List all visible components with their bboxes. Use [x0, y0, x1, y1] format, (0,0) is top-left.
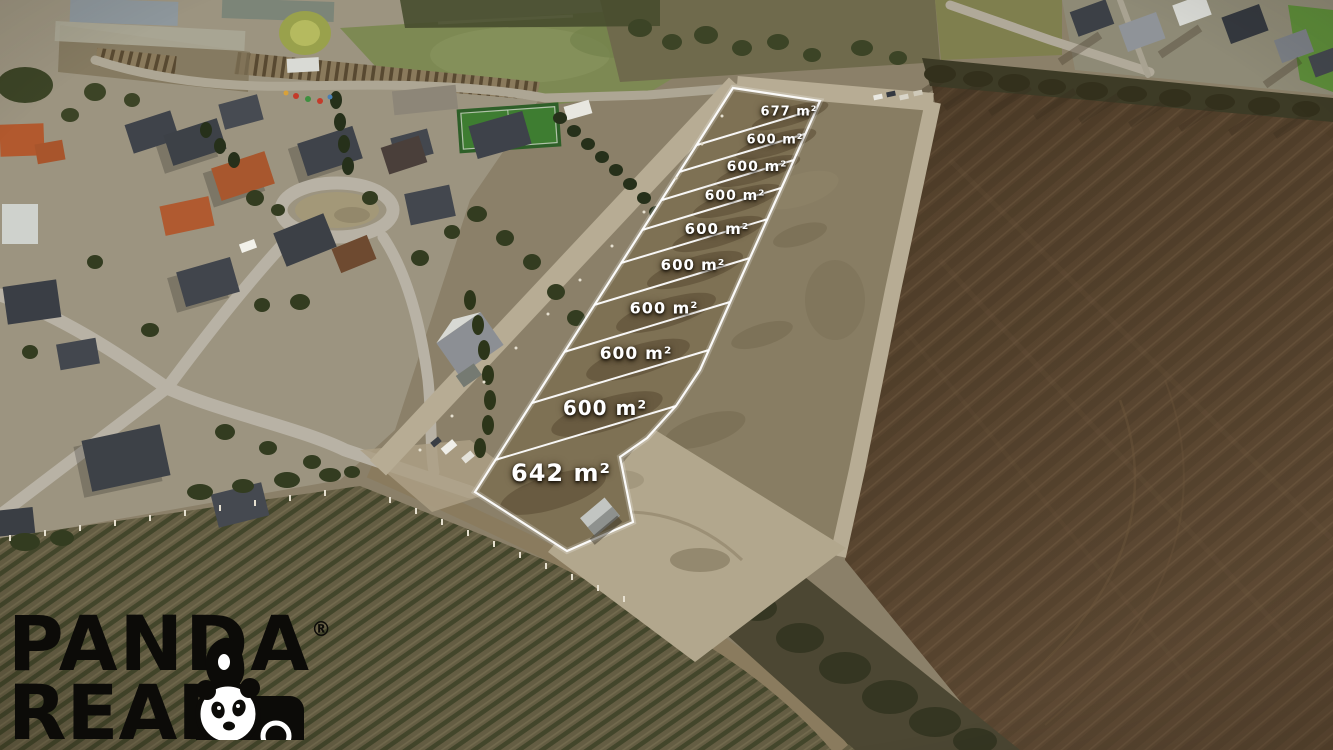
plot-label: 600 m²: [705, 188, 766, 204]
registered-trademark: ®: [311, 617, 331, 641]
plot-label: 600 m²: [600, 344, 673, 364]
panda-real-logo: PANDA® REAL: [8, 596, 331, 749]
plot-label: 600 m²: [747, 133, 804, 148]
plot-label: 677 m²: [761, 105, 818, 120]
panda-face-icon: [194, 610, 308, 740]
plot-label: 600 m²: [661, 256, 726, 274]
plot-label: 600 m²: [727, 159, 788, 175]
plot-label: 600 m²: [630, 299, 699, 318]
plot-label: 600 m²: [685, 220, 750, 238]
aerial-photo: 677 m²600 m²600 m²600 m²600 m²600 m²600 …: [0, 0, 1333, 750]
plot-label: 642 m²: [511, 459, 611, 487]
plot-label: 600 m²: [563, 396, 647, 420]
